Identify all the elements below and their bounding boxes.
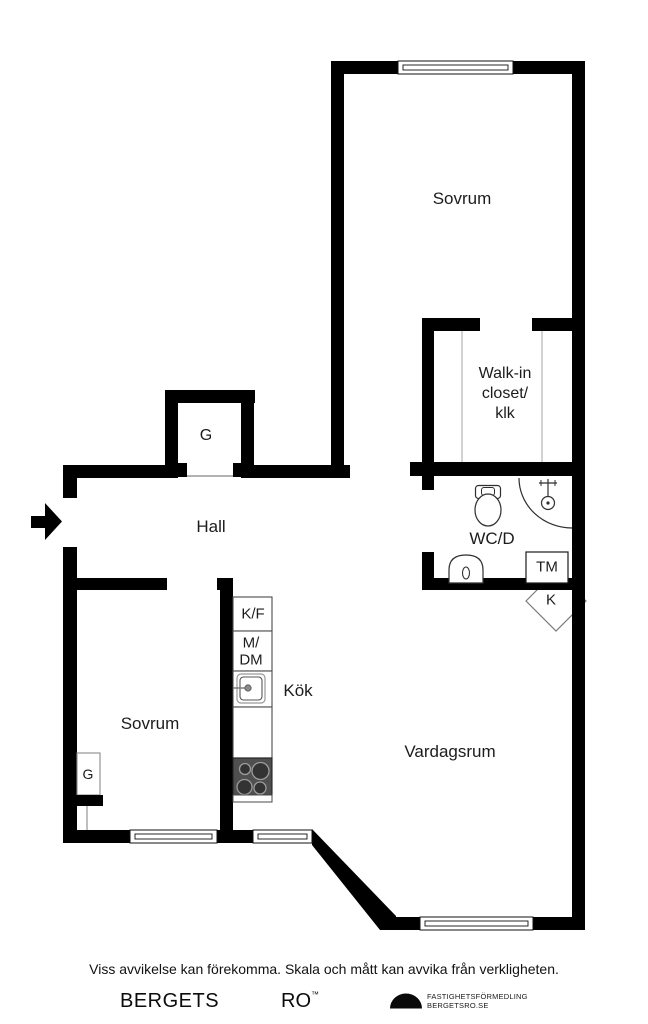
wall xyxy=(410,462,585,476)
disclaimer-text: Viss avvikelse kan förekomma. Skala och … xyxy=(89,961,559,977)
wall xyxy=(532,318,572,331)
agency-line2: BERGETSRO.SE xyxy=(427,1001,528,1010)
entry-arrow-icon xyxy=(31,503,62,540)
wall xyxy=(63,465,77,498)
fridge-freezer-label: K/F xyxy=(241,605,264,622)
wall xyxy=(217,830,253,843)
room-label-walkin-line1: Walk-in xyxy=(479,364,532,384)
dome-logo-icon xyxy=(389,993,423,1009)
wardrobe-label-bedroom: G xyxy=(83,766,94,782)
wall xyxy=(331,61,344,465)
trademark-symbol: ™ xyxy=(311,990,319,999)
brand-word-ro: RO xyxy=(281,990,311,1013)
washing-machine-label: TM xyxy=(536,558,558,575)
agency-line1: FASTIGHETSFÖRMEDLING xyxy=(427,992,528,1001)
toilet-icon xyxy=(475,486,501,527)
room-label-kitchen: Kök xyxy=(283,681,312,701)
floorplan-drawing xyxy=(0,0,648,1024)
room-label-living: Vardagsrum xyxy=(404,742,495,762)
micro-dishwasher-label-line1: M/ xyxy=(243,635,260,652)
kitchen-sink-icon xyxy=(233,674,265,703)
wall-stub xyxy=(74,795,103,806)
room-label-walkin-line2: closet/ xyxy=(482,384,528,404)
room-label-wc: WC/D xyxy=(469,529,514,549)
room-label-bedroom-bottom: Sovrum xyxy=(121,714,180,734)
room-label-hall: Hall xyxy=(196,517,225,537)
walls xyxy=(63,61,585,930)
window-bedroom-bottom xyxy=(130,830,217,843)
window-kitchen xyxy=(253,830,312,843)
wall xyxy=(254,465,350,478)
room-label-walkin-line3: klk xyxy=(495,404,515,424)
corner-shower-icon xyxy=(519,478,572,528)
wall xyxy=(165,463,187,477)
wall xyxy=(63,830,130,843)
wall xyxy=(390,917,422,930)
window-bedroom-top xyxy=(398,61,513,74)
micro-dishwasher-label-line2: DM xyxy=(239,652,262,669)
room-label-bedroom-top: Sovrum xyxy=(433,189,492,209)
stove-icon xyxy=(233,758,272,795)
wall xyxy=(233,463,254,477)
floorplan-page: Sovrum Walk-in closet/ klk Hall G WC/D T… xyxy=(0,0,648,1024)
wall-right-exterior xyxy=(572,61,585,930)
wall xyxy=(63,465,165,478)
wall xyxy=(533,917,585,930)
wardrobe-label-hall: G xyxy=(200,427,212,445)
bedroom-wardrobe xyxy=(74,753,103,830)
wall-diagonal xyxy=(312,829,396,930)
kitchen-counter xyxy=(233,597,272,802)
counter-box xyxy=(233,707,272,758)
wall xyxy=(63,578,167,590)
window-living-room xyxy=(420,917,533,930)
agency-text: FASTIGHETSFÖRMEDLING BERGETSRO.SE xyxy=(427,992,528,1010)
washbasin-icon xyxy=(449,555,483,583)
cabinet-label: K xyxy=(546,591,556,608)
wall-kitchen xyxy=(220,578,233,843)
counter-end xyxy=(233,795,272,802)
brand-word-bergets: BERGETS xyxy=(120,990,219,1013)
